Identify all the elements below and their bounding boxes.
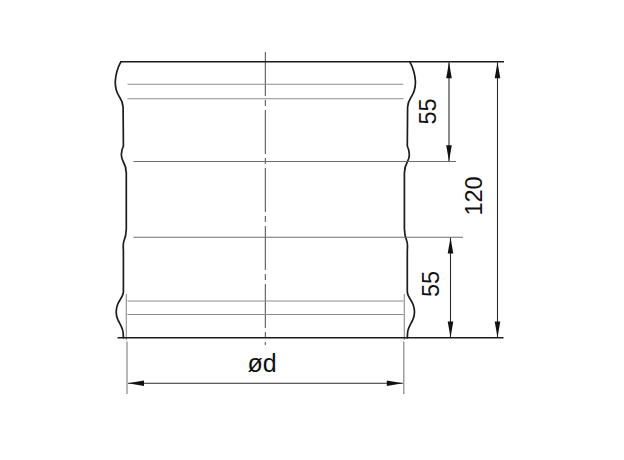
pipe-right-edge: [404, 62, 415, 338]
pipe-adapter-drawing: 55 55 120 ød: [0, 0, 624, 460]
dimension-label-55-top: 55: [415, 98, 441, 124]
arrow-down-icon: [446, 145, 452, 161]
arrow-up-icon: [446, 62, 452, 78]
dimension-label-diameter: ød: [247, 349, 276, 377]
arrow-up-icon: [448, 238, 454, 254]
technical-drawing-page: 55 55 120 ød: [0, 0, 624, 460]
dimension-55-bottom: 55: [418, 238, 453, 338]
dimension-120: 120: [461, 62, 501, 337]
arrow-down-icon: [448, 322, 454, 338]
arrow-left-icon: [128, 381, 144, 387]
dimension-diameter: ød: [127, 342, 404, 395]
pipe-left-edge: [115, 62, 126, 338]
arrow-up-icon: [495, 62, 501, 78]
dimension-label-55-bottom: 55: [418, 271, 444, 297]
arrow-right-icon: [387, 381, 403, 387]
dimension-55-top: 55: [415, 62, 452, 161]
dimension-label-120: 120: [461, 176, 487, 215]
arrow-down-icon: [495, 322, 501, 338]
